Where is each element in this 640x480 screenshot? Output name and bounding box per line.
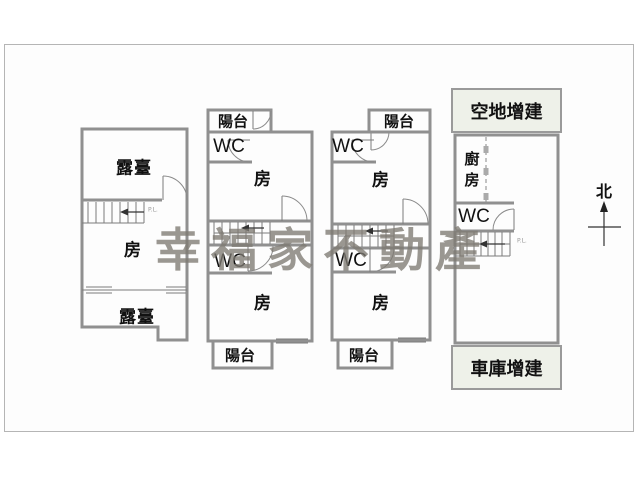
unit4-wc-label: WC bbox=[458, 206, 490, 228]
vacant-land-annotation-label: 空地增建 bbox=[471, 98, 543, 124]
garage-annotation-box: 車庫增建 bbox=[451, 345, 562, 390]
unit4-kitchen-label: 廚房 bbox=[462, 151, 483, 193]
unit2-balcony-top-label: 陽台 bbox=[218, 111, 248, 132]
unit3-wc-upper-label: WC bbox=[332, 136, 364, 158]
unit1-room-label: 房 bbox=[124, 236, 142, 261]
unit1-terrace-bottom-label: 露臺 bbox=[119, 303, 155, 328]
unit3-balcony-top-label: 陽台 bbox=[384, 111, 414, 132]
unit2-room-lower-label: 房 bbox=[254, 289, 272, 314]
floor-plan: 空地增建 車庫增建 露臺 房 露臺 P.L. 陽台 WC 房 WC 房 陽台 W… bbox=[0, 0, 640, 480]
unit3-balcony-bottom-label: 陽台 bbox=[349, 345, 379, 366]
unit2-room-upper-label: 房 bbox=[254, 165, 272, 190]
unit4-stair-note: P.L. bbox=[517, 238, 527, 245]
unit1-terrace-top-label: 露臺 bbox=[116, 154, 152, 179]
unit2-wc-lower-label: WC bbox=[214, 251, 246, 273]
unit2-balcony-bottom-label: 陽台 bbox=[225, 345, 255, 366]
garage-annotation-label: 車庫增建 bbox=[471, 355, 543, 381]
unit1-stair-note: P.L. bbox=[148, 207, 158, 214]
unit3-wc-lower-label: WC bbox=[335, 250, 367, 272]
unit3-room-lower-label: 房 bbox=[372, 289, 390, 314]
unit3-room-upper-label: 房 bbox=[372, 166, 390, 191]
north-label: 北 bbox=[596, 178, 612, 202]
unit2-wc-upper-label: WC bbox=[213, 136, 245, 158]
vacant-land-annotation-box: 空地增建 bbox=[451, 88, 562, 133]
